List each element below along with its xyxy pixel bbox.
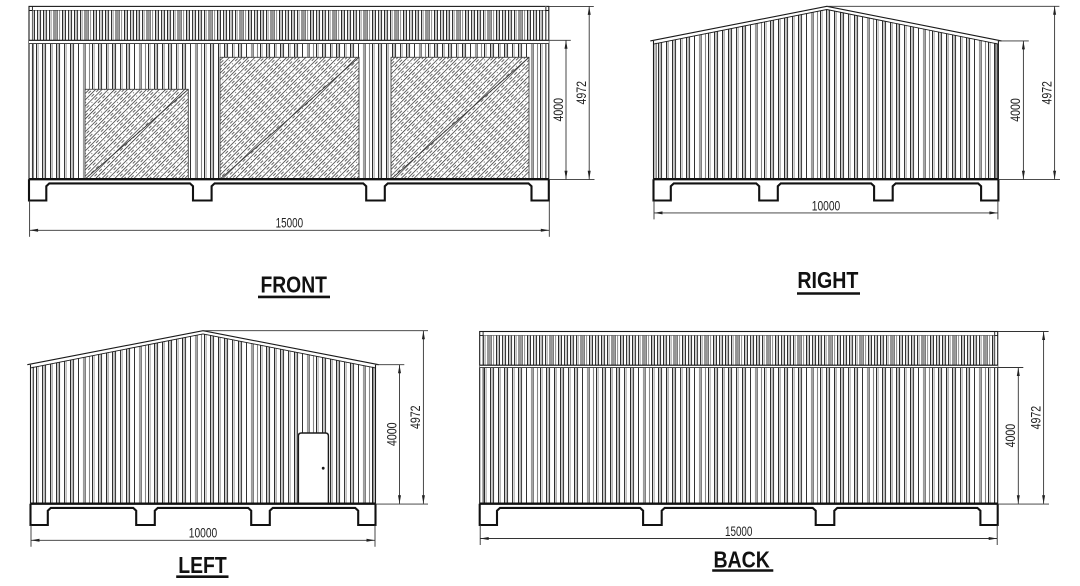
- svg-text:4000: 4000: [551, 98, 566, 122]
- svg-text:10000: 10000: [189, 526, 218, 541]
- svg-text:10000: 10000: [812, 198, 841, 213]
- svg-text:4000: 4000: [384, 422, 399, 446]
- svg-text:4000: 4000: [1008, 98, 1023, 122]
- svg-text:BACK: BACK: [713, 546, 770, 572]
- svg-text:4000: 4000: [1003, 424, 1018, 448]
- svg-text:15000: 15000: [725, 524, 753, 539]
- svg-text:RIGHT: RIGHT: [797, 267, 858, 293]
- svg-text:4972: 4972: [1028, 406, 1043, 430]
- svg-text:4972: 4972: [574, 81, 589, 105]
- svg-text:15000: 15000: [276, 216, 304, 231]
- svg-text:4972: 4972: [1039, 81, 1054, 105]
- svg-text:FRONT: FRONT: [260, 271, 327, 297]
- svg-text:4972: 4972: [408, 405, 423, 429]
- svg-text:LEFT: LEFT: [178, 552, 227, 578]
